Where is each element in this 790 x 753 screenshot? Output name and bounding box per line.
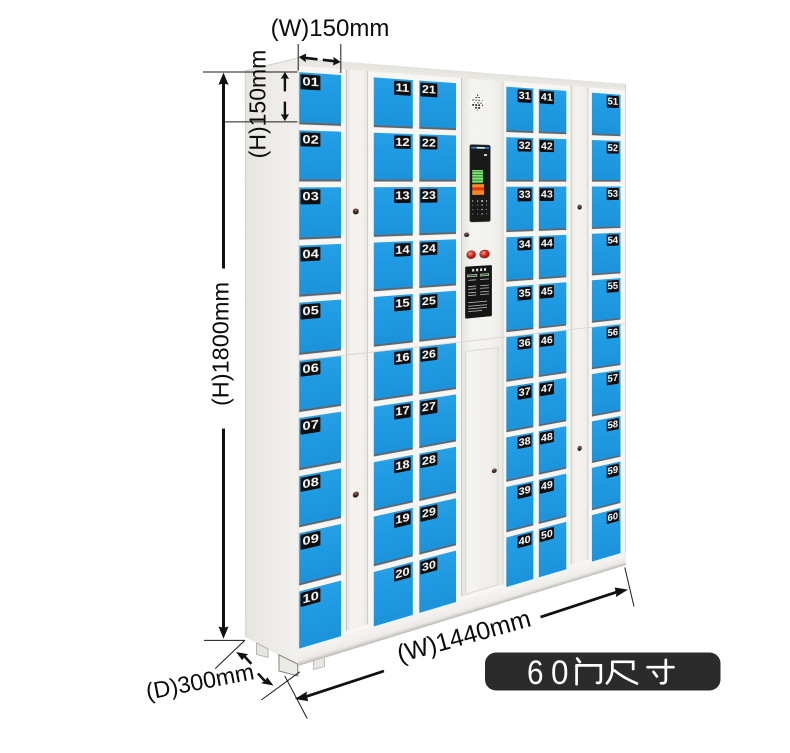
- svg-text:0: 0: [551, 654, 569, 692]
- svg-text:6: 6: [527, 654, 544, 692]
